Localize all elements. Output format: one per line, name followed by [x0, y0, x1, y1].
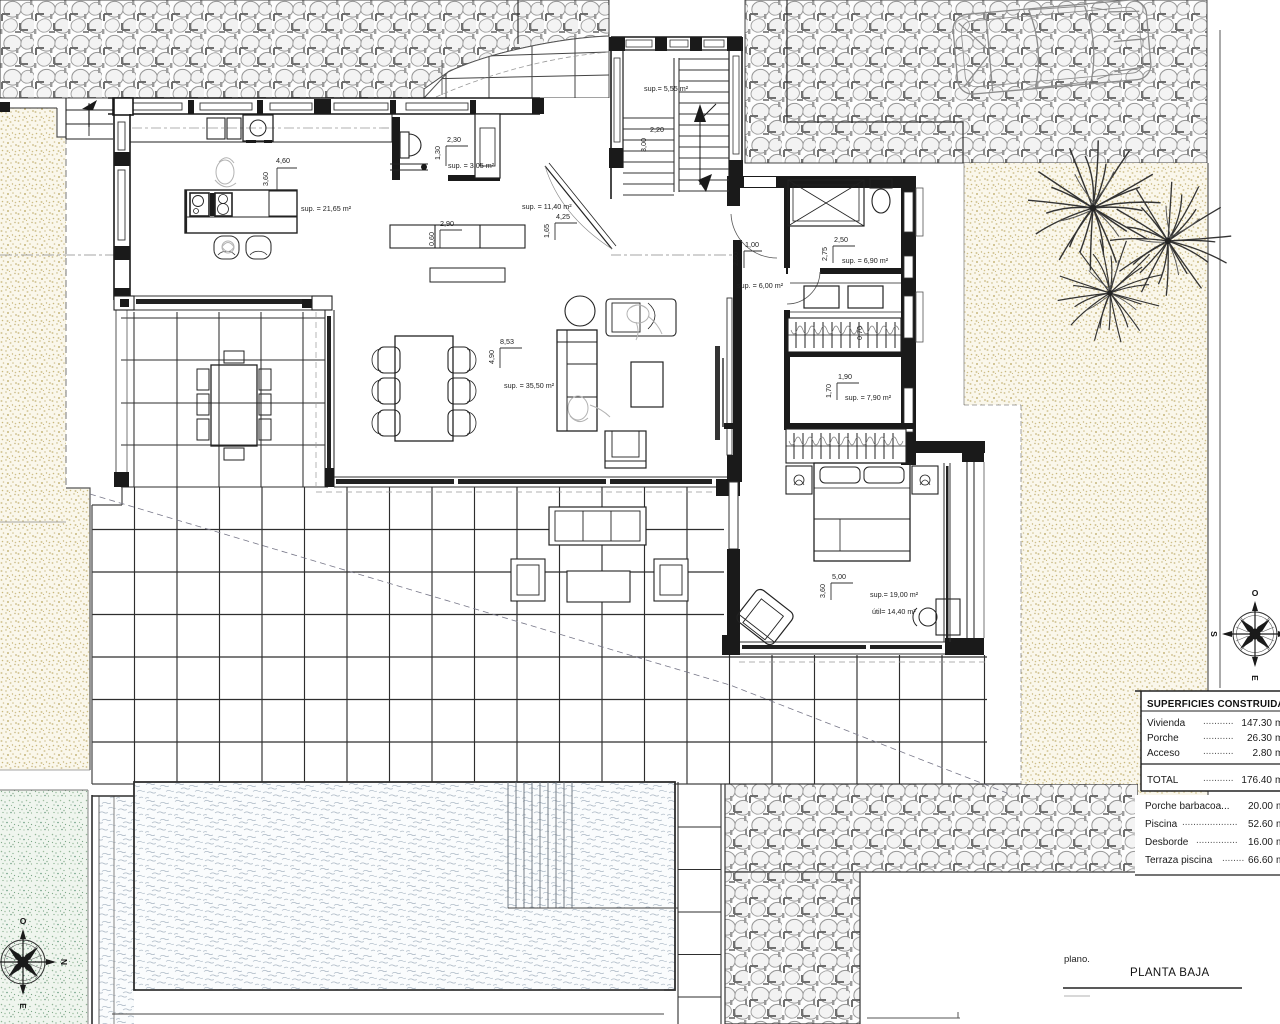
svg-text:66.60: 66.60: [1248, 855, 1273, 866]
svg-text:8,53: 8,53: [500, 337, 514, 346]
svg-text:PLANTA BAJA: PLANTA BAJA: [1130, 967, 1210, 979]
svg-text:m: m: [1275, 733, 1280, 744]
svg-text:O: O: [1252, 588, 1259, 598]
svg-text:S: S: [1209, 631, 1219, 637]
svg-text:...........: ...........: [1203, 731, 1234, 742]
svg-text:Terraza piscina: Terraza piscina: [1145, 855, 1213, 866]
svg-text:m: m: [1276, 801, 1280, 812]
svg-text:TOTAL: TOTAL: [1147, 775, 1179, 786]
svg-text:m: m: [1276, 819, 1280, 830]
svg-text:sup. = 21,65 m²: sup. = 21,65 m²: [301, 204, 352, 213]
svg-text:1,70: 1,70: [824, 384, 833, 398]
svg-text:Porche barbacoa...: Porche barbacoa...: [1145, 801, 1230, 812]
svg-text:4,60: 4,60: [276, 156, 290, 165]
svg-text:sup. = 7,90 m²: sup. = 7,90 m²: [845, 393, 892, 402]
svg-text:sup. = 35,50 m²: sup. = 35,50 m²: [504, 381, 555, 390]
svg-text:16.00: 16.00: [1248, 837, 1273, 848]
svg-text:3,60: 3,60: [261, 172, 270, 186]
svg-text:Desborde: Desborde: [1145, 837, 1189, 848]
svg-text:3,60: 3,60: [818, 584, 827, 598]
svg-text:útil= 14,40 m²: útil= 14,40 m²: [872, 607, 916, 616]
svg-text:2,20: 2,20: [650, 125, 664, 134]
svg-text:2,50: 2,50: [834, 235, 848, 244]
svg-text:sup. = 11,40 m²: sup. = 11,40 m²: [522, 202, 572, 211]
svg-text:4,25: 4,25: [556, 212, 570, 221]
svg-text:2,90: 2,90: [440, 219, 454, 228]
svg-text:Vivienda: Vivienda: [1147, 718, 1186, 729]
svg-text:...........: ...........: [1203, 746, 1234, 757]
svg-text:E: E: [1250, 675, 1260, 681]
svg-text:1,30: 1,30: [433, 146, 442, 160]
svg-text:5,00: 5,00: [832, 572, 846, 581]
svg-text:2,30: 2,30: [447, 135, 461, 144]
svg-text:E: E: [18, 1003, 28, 1009]
svg-text:O: O: [20, 916, 27, 926]
svg-text:........: ........: [1222, 853, 1244, 864]
svg-text:176.40: 176.40: [1241, 775, 1272, 786]
svg-text:2.80: 2.80: [1253, 748, 1273, 759]
svg-text:2,60: 2,60: [731, 252, 740, 266]
svg-text:26.30: 26.30: [1247, 733, 1272, 744]
svg-text:....................: ....................: [1182, 817, 1238, 828]
svg-text:m: m: [1276, 837, 1280, 848]
svg-text:m: m: [1275, 748, 1280, 759]
svg-text:sup. = 6,90 m²: sup. = 6,90 m²: [842, 256, 889, 265]
svg-text:plano.: plano.: [1064, 954, 1090, 965]
svg-text:52.60: 52.60: [1248, 819, 1273, 830]
svg-text:m: m: [1275, 775, 1280, 786]
svg-text:sup. = 6,00 m²: sup. = 6,00 m²: [737, 281, 784, 290]
svg-text:m: m: [1276, 855, 1280, 866]
svg-text:sup.= 19,00 m²: sup.= 19,00 m²: [870, 590, 919, 599]
svg-text:...........: ...........: [1203, 716, 1234, 727]
svg-text:sup.= 5,55 m²: sup.= 5,55 m²: [644, 84, 689, 93]
svg-text:Piscina: Piscina: [1145, 819, 1178, 830]
svg-text:...........: ...........: [1203, 773, 1234, 784]
svg-text:0,70: 0,70: [855, 326, 864, 340]
svg-text:3,00: 3,00: [639, 138, 648, 152]
svg-text:1,00: 1,00: [745, 240, 759, 249]
svg-text:SUPERFICIES CONSTRUIDA: SUPERFICIES CONSTRUIDA: [1147, 699, 1280, 710]
svg-text:N: N: [59, 959, 69, 965]
svg-text:2,75: 2,75: [820, 247, 829, 261]
svg-text:Acceso: Acceso: [1147, 748, 1180, 759]
svg-text:1,65: 1,65: [542, 224, 551, 238]
svg-text:1,90: 1,90: [838, 372, 852, 381]
svg-text:20.00: 20.00: [1248, 801, 1273, 812]
svg-text:Porche: Porche: [1147, 733, 1179, 744]
svg-text:0,60: 0,60: [427, 232, 436, 246]
svg-text:147.30: 147.30: [1241, 718, 1272, 729]
svg-text:...............: ...............: [1196, 835, 1238, 846]
svg-text:sup. = 3,05 m²: sup. = 3,05 m²: [448, 161, 495, 170]
svg-text:4,90: 4,90: [487, 350, 496, 364]
svg-text:m: m: [1275, 718, 1280, 729]
